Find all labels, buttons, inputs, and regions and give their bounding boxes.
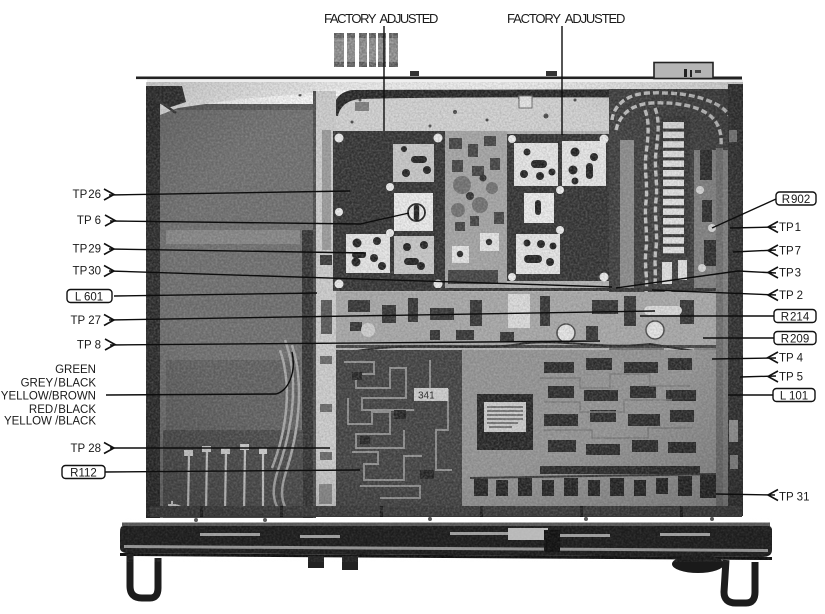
- svg-text:TP 8: TP 8: [77, 339, 101, 351]
- svg-text:TP 4: TP 4: [779, 353, 804, 365]
- svg-text:R 214: R 214: [781, 312, 810, 324]
- svg-text:YELLOW /BLACK: YELLOW /BLACK: [4, 415, 96, 427]
- svg-text:TP 30: TP 30: [73, 266, 101, 278]
- svg-text:TP 1: TP 1: [779, 222, 801, 234]
- svg-text:YELLOW/BROWN: YELLOW/BROWN: [1, 391, 96, 403]
- svg-text:TP 3: TP 3: [779, 268, 801, 280]
- svg-text:R112: R112: [70, 468, 97, 480]
- svg-text:TP 26: TP 26: [73, 189, 101, 201]
- svg-text:GREY / BLACK: GREY / BLACK: [21, 378, 97, 390]
- svg-text:TP 6: TP 6: [77, 215, 101, 227]
- svg-text:L 101: L 101: [780, 391, 808, 403]
- svg-text:L 601: L 601: [75, 292, 103, 304]
- svg-text:TP 2: TP 2: [779, 290, 803, 302]
- svg-text:TP 31: TP 31: [779, 491, 809, 503]
- svg-text:TP 28: TP 28: [71, 443, 101, 455]
- svg-text:TP 5: TP 5: [779, 371, 803, 383]
- svg-text:FACTORY ADJUSTED: FACTORY ADJUSTED: [507, 11, 626, 26]
- svg-text:TP 29: TP 29: [73, 244, 101, 256]
- svg-text:R 209: R 209: [781, 334, 809, 346]
- svg-text:RED / BLACK: RED / BLACK: [29, 404, 96, 416]
- svg-text:R 902: R 902: [782, 194, 810, 206]
- svg-text:FACTORY ADJUSTED: FACTORY ADJUSTED: [324, 11, 439, 26]
- svg-text:TP 27: TP 27: [71, 315, 101, 327]
- svg-text:TP 7: TP 7: [779, 245, 801, 257]
- svg-text:GREEN: GREEN: [55, 364, 96, 376]
